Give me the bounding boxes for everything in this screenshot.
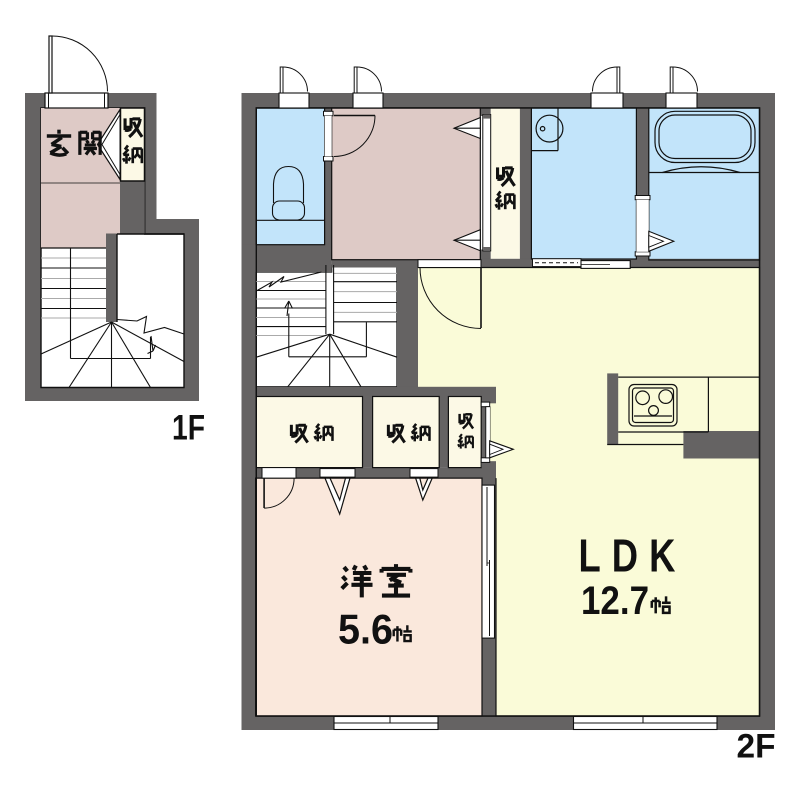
svg-text:5.6: 5.6 [338,606,393,653]
svg-text:2F: 2F [737,728,776,766]
svg-text:1F: 1F [172,409,205,448]
svg-text:LDK: LDK [579,530,687,582]
svg-text:12.7: 12.7 [581,579,649,623]
